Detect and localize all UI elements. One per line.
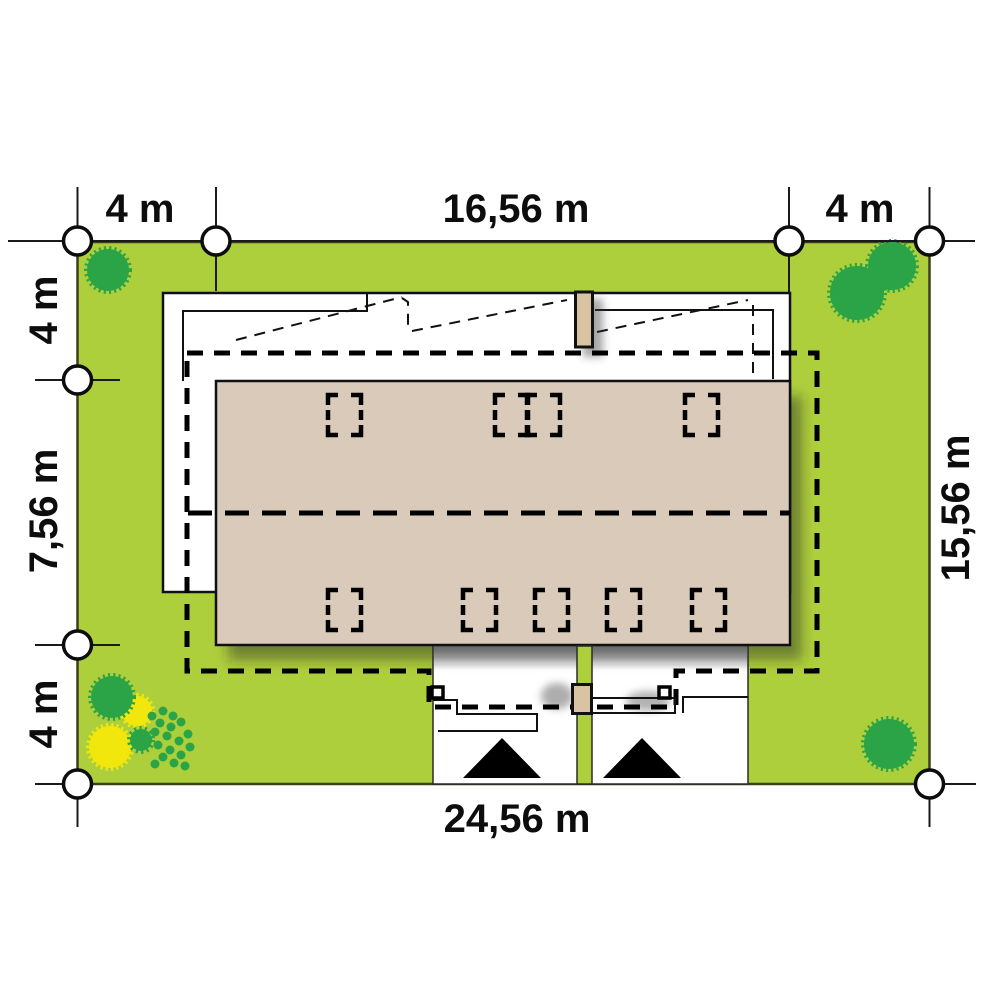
shrub-dot bbox=[170, 759, 179, 768]
dim-label-plot-width: 24,56 m bbox=[444, 797, 591, 841]
shrub-dot bbox=[156, 719, 165, 728]
shrub-dot bbox=[159, 707, 168, 716]
dim-label-left-setback-top: 4 m bbox=[22, 276, 66, 345]
entrance-pillar bbox=[573, 685, 592, 714]
dimension-marker bbox=[64, 631, 92, 659]
dimension-marker bbox=[64, 227, 92, 255]
shrub-dot bbox=[154, 741, 163, 750]
dim-label-top-setback-left: 4 m bbox=[106, 187, 175, 231]
dim-label-left-setback-bottom: 4 m bbox=[22, 680, 66, 749]
shrub-dot bbox=[175, 737, 184, 746]
dimension-marker bbox=[916, 227, 944, 255]
tree-bottom-right bbox=[864, 719, 914, 769]
dimension-marker bbox=[202, 227, 230, 255]
shrub-dot bbox=[184, 730, 193, 739]
shrub-dot bbox=[166, 746, 175, 755]
canopy-post-right bbox=[659, 687, 670, 698]
shrub-yellow-large bbox=[89, 726, 131, 768]
dimension-marker bbox=[64, 366, 92, 394]
shrub-dot bbox=[177, 751, 186, 760]
canopy-post-left bbox=[432, 687, 443, 698]
shrub-dot bbox=[167, 723, 176, 732]
dim-label-plot-depth: 15,56 m bbox=[934, 435, 978, 582]
site-plan: 4 m 16,56 m 4 m 4 m 7,56 m 4 m 15,56 m 2… bbox=[0, 0, 1000, 1000]
tree-top-left bbox=[87, 249, 129, 291]
site-plan-drawing: 4 m 16,56 m 4 m 4 m 7,56 m 4 m 15,56 m 2… bbox=[0, 0, 1000, 1000]
shrub-dot bbox=[148, 712, 157, 721]
shrub-dot bbox=[163, 732, 172, 741]
tree-top-right-2 bbox=[868, 242, 916, 290]
dimension-marker bbox=[64, 770, 92, 798]
shrub-dot bbox=[159, 753, 168, 762]
dim-label-house-depth: 7,56 m bbox=[22, 449, 66, 574]
chimney bbox=[576, 292, 593, 347]
shrub-dot bbox=[169, 712, 178, 721]
shrub-dot bbox=[151, 760, 160, 769]
tree-bottom-left bbox=[91, 676, 133, 718]
shrub-dot bbox=[177, 718, 186, 727]
dimension-marker bbox=[775, 227, 803, 255]
shrub-dot bbox=[181, 762, 190, 771]
dim-label-house-width: 16,56 m bbox=[443, 187, 590, 231]
shrub-dot bbox=[186, 743, 195, 752]
dimension-marker bbox=[916, 770, 944, 798]
shrub-dot bbox=[151, 728, 160, 737]
dim-label-top-setback-right: 4 m bbox=[826, 187, 895, 231]
tree-bottom-left-small bbox=[130, 729, 152, 751]
